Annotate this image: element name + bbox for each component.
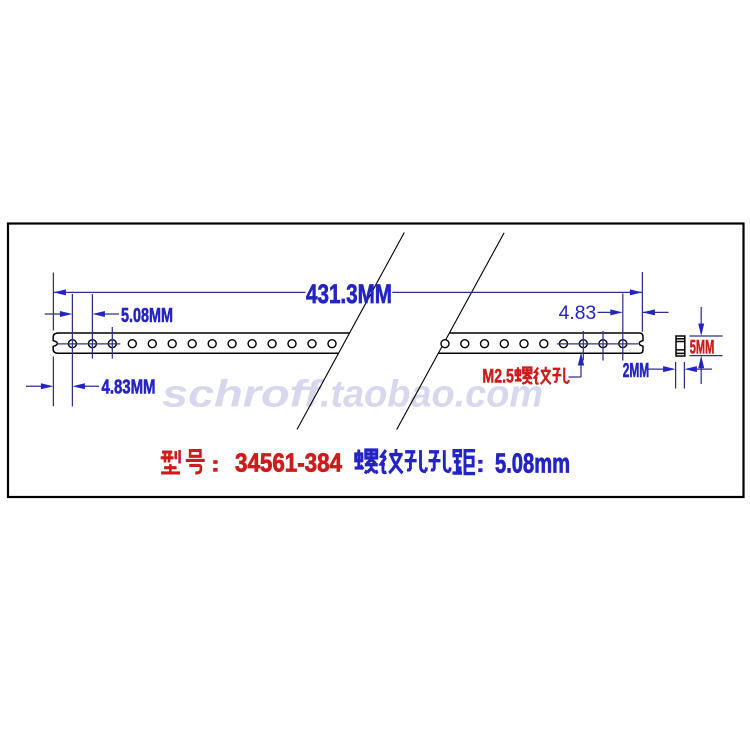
svg-text:5.08MM: 5.08MM (121, 305, 173, 327)
svg-text:4.83: 4.83 (559, 303, 597, 324)
svg-text:M2.5: M2.5 (482, 367, 514, 388)
svg-text:2MM: 2MM (623, 360, 650, 382)
svg-text:schroff: schroff (162, 374, 324, 416)
svg-text:5.08mm: 5.08mm (495, 447, 570, 478)
svg-text:5MM: 5MM (690, 337, 715, 358)
svg-text:4.83MM: 4.83MM (102, 377, 156, 399)
svg-text:34561-384: 34561-384 (235, 447, 342, 477)
svg-text:431.3MM: 431.3MM (306, 279, 392, 309)
